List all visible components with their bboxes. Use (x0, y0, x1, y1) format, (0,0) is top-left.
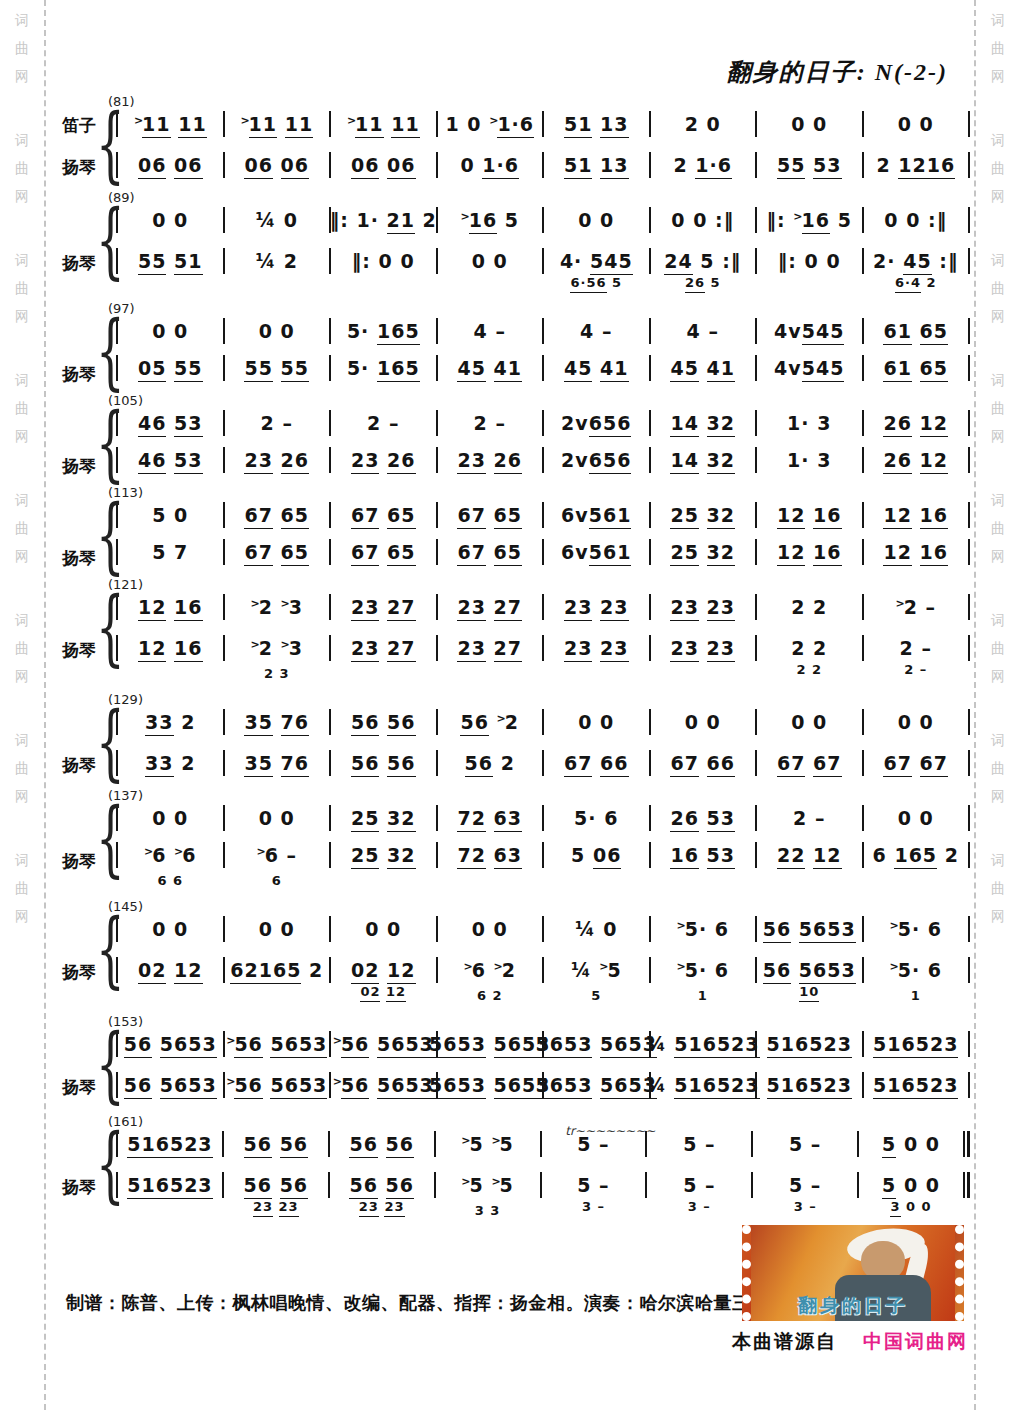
measure-notes: 72 63 (457, 841, 522, 869)
beamed-note-group: 12 (777, 541, 805, 566)
measure: ¼ 2 (225, 247, 330, 275)
measure: ¾ 516523 (651, 1030, 756, 1058)
album-art: 翻身的日子 (742, 1225, 964, 1321)
watermark-char: 词 (991, 13, 1005, 27)
measure: 0 0 (225, 317, 330, 345)
watermark-char: 网 (991, 549, 1005, 563)
system-rows: 0 00 00 00 0¼ 0>5· 656 5653>5· 602 12621… (116, 915, 970, 1003)
accent-mark: > (676, 919, 685, 932)
measure: 23 27 (331, 634, 436, 662)
part-label-upper: 笛子 (50, 114, 96, 137)
watermark-group: 词曲网 (15, 606, 29, 690)
measure-notes: 2 – (261, 409, 293, 437)
measure: 26 53 (651, 804, 756, 832)
measure-notes: >56 5653 (226, 1071, 327, 1103)
measure-notes: 56 56 (351, 749, 416, 777)
notation-row-upper: 0 0¼ 0‖: 1· 21 2>16 50 00 0 :‖‖: >16 50 … (116, 206, 970, 238)
beamed-note-group: 13 (600, 154, 628, 179)
beamed-note-group: 56 (349, 1133, 377, 1158)
system-brace: { (96, 407, 105, 481)
measure: 46 53 (118, 446, 223, 474)
barline (968, 318, 970, 344)
measure-notes: 26 12 (883, 409, 948, 437)
watermark-column-right: 词曲网词曲网词曲网词曲网词曲网词曲网词曲网词曲网 (974, 0, 1020, 1410)
beamed-note-group: 53 (174, 449, 202, 474)
measure: 23 23 (651, 593, 756, 621)
beamed-note-group: 23 (384, 1199, 404, 1217)
measure-notes: 24 5 :‖ (664, 247, 741, 275)
beamed-note-group: 56 (234, 1033, 262, 1058)
barline (968, 152, 970, 178)
barline (963, 1172, 965, 1198)
measure: 23 26 (331, 446, 436, 474)
beamed-note-group: 12 (883, 541, 911, 566)
beamed-note-group: 26 (494, 449, 522, 474)
beamed-note-group: 14 (670, 449, 698, 474)
measure-notes: 61 65 (883, 354, 948, 382)
measure: 06 06 (225, 151, 330, 179)
album-title-text: 翻身的日子 (751, 1293, 955, 1319)
measure: 0 0 (118, 804, 223, 832)
notation-row-upper: 56 5653>56 5653>56 56535653 56535653 565… (116, 1030, 970, 1062)
measure-notes: >16 5 (460, 206, 519, 238)
barline (968, 502, 970, 528)
measure-notes: 516523 (873, 1071, 958, 1099)
measure-number: (81) (108, 94, 970, 109)
beamed-note-group: 21 (387, 209, 415, 234)
beamed-note-group: 516523 (873, 1033, 958, 1058)
barline (968, 447, 970, 473)
measure-notes: 0 0 (152, 317, 188, 345)
beamed-note-group: 45 (457, 357, 485, 382)
measure-notes: 0 0 (259, 804, 295, 832)
measure-notes: 516523 (127, 1130, 212, 1158)
beamed-note-group: 26 (387, 449, 415, 474)
measure-sub-notes: 1 (911, 989, 921, 1003)
beamed-note-group: 06 (138, 154, 166, 179)
measure: 2 1·6 (651, 151, 756, 179)
beamed-note-group: 67 (564, 752, 592, 777)
measure: 12 16 (864, 538, 969, 566)
measure: 2 – (438, 409, 543, 437)
measure-notes: >6 >6 (144, 841, 197, 873)
measure-notes: 33 2 (145, 708, 195, 736)
beamed-note-group: 16 (802, 209, 830, 234)
barline (968, 842, 970, 868)
watermark-char: 词 (991, 373, 1005, 387)
measure-number: (105) (108, 393, 970, 408)
measure-notes: 0 0 (472, 247, 508, 275)
measure: 26 12 (864, 446, 969, 474)
measure-number: (137) (108, 788, 970, 803)
measure: 516523 (118, 1171, 222, 1199)
measure-notes: 2 2 (791, 593, 827, 621)
watermark-group: 词曲网 (15, 846, 29, 930)
system-brace: { (96, 706, 105, 780)
measure-notes: 16 53 (670, 841, 735, 869)
beamed-note-group: 5653 (160, 1033, 217, 1058)
measure-notes: 0 0 (578, 708, 614, 736)
beamed-note-group: 06 (351, 154, 379, 179)
measure: 5 06 (544, 841, 649, 869)
measure: 45 41 (438, 354, 543, 382)
measure-notes: ¾ 516523 (646, 1030, 760, 1058)
beamed-note-group: 5653 (429, 1033, 486, 1058)
barline (968, 1031, 970, 1057)
measure-sub-notes: 6·4 2 (895, 276, 937, 290)
beamed-note-group: 65 (387, 504, 415, 529)
beamed-note-group: 516523 (674, 1074, 759, 1099)
accent-mark: > (250, 597, 259, 610)
beamed-note-group: 16 (174, 596, 202, 621)
beamed-note-group: 55 (174, 357, 202, 382)
measure-notes: 56 5653 (763, 956, 856, 984)
measure-sub-notes: 3 0 0 (890, 1200, 931, 1214)
watermark-char: 曲 (15, 641, 29, 655)
beamed-note-group: 65 (494, 504, 522, 529)
beamed-note-group: 41 (494, 357, 522, 382)
watermark-char: 曲 (15, 521, 29, 535)
measure-notes: 06 06 (244, 151, 309, 179)
measure-notes: >56 5653 (226, 1030, 327, 1062)
beamed-note-group: 06 (593, 844, 621, 869)
measure-notes: 2 – (367, 409, 399, 437)
measure-notes: 516523 (767, 1071, 852, 1099)
beamed-note-group: 56 (386, 1174, 414, 1199)
measure-notes: ‖: 1· 21 2 (330, 206, 437, 234)
measure-notes: 12 16 (883, 538, 948, 566)
watermark-group: 词曲网 (991, 846, 1005, 930)
measure-notes: 4 – (474, 317, 506, 345)
accent-mark: > (461, 1134, 470, 1147)
beamed-note-group: 72 (457, 844, 485, 869)
measure: 0 0 (331, 915, 436, 943)
credits-text: 制谱：陈普、上传：枫林唱晚情、改编、配器、指挥：扬金相。演奏：哈尔滨哈量三社区艺… (66, 1291, 843, 1315)
measure-number: (129) (108, 692, 970, 707)
beamed-note-group: 56 (280, 1174, 308, 1199)
measure-notes: 0 0 (898, 804, 934, 832)
measure: 61 65 (864, 317, 969, 345)
beamed-note-group: 65 (920, 357, 948, 382)
measure-notes: 23 27 (351, 634, 416, 662)
measure-notes: 0 0 (791, 110, 827, 138)
measure-notes: 23 23 (564, 634, 629, 662)
measure-notes: 45 41 (457, 354, 522, 382)
notation-row-lower: 12 16>2 >32 323 2723 2723 2323 232 22 22… (116, 634, 970, 681)
system-rows: 0 0¼ 0‖: 1· 21 2>16 50 00 0 :‖‖: >16 50 … (116, 206, 970, 290)
measure: 0 0 (544, 708, 649, 736)
beamed-note-group: 56 (351, 752, 379, 777)
measure: 25 32 (331, 841, 436, 869)
measure-notes: 12 16 (777, 501, 842, 529)
notation-row-lower: 5 767 6567 6567 656v56125 3212 1612 16 (116, 538, 970, 566)
measure-notes: 35 76 (244, 708, 309, 736)
measure-number: (89) (108, 190, 970, 205)
measure-notes: 5653 5653 (536, 1071, 657, 1099)
part-label-lower: 扬琴 (50, 639, 96, 662)
measure: >6 >66 6 (118, 841, 223, 888)
beamed-note-group: 11 (391, 113, 419, 138)
measure: 5· 6 (544, 804, 649, 832)
measure-number: (113) (108, 485, 970, 500)
part-label-lower: 扬琴 (50, 961, 96, 984)
measure: 0 0 (225, 915, 330, 943)
measure: >56 5653 (225, 1030, 330, 1062)
beamed-note-group: 16 (920, 504, 948, 529)
beamed-note-group: 16 (813, 541, 841, 566)
beamed-note-group: 45 (564, 357, 592, 382)
beamed-note-group: 53 (707, 844, 735, 869)
beamed-note-group: 12 (387, 959, 415, 984)
measure-notes: 2v656 (561, 409, 631, 437)
measure-notes: >2 – (895, 593, 936, 625)
beamed-note-group: 61 (883, 357, 911, 382)
beamed-note-group: 56 (124, 1074, 152, 1099)
measure: 56 56 (331, 749, 436, 777)
watermark-group: 词曲网 (15, 486, 29, 570)
beamed-note-group: 65 (281, 541, 309, 566)
measure: >5· 6 (651, 915, 756, 947)
beamed-note-group: 12 (138, 596, 166, 621)
beamed-note-group: 23 (600, 596, 628, 621)
accent-mark: > (676, 960, 685, 973)
measure: 5653 5653 (438, 1071, 543, 1099)
barline (968, 916, 970, 942)
measure-notes: ‖: >16 5 (767, 206, 852, 238)
measure-notes: 55 51 (138, 247, 203, 275)
measure-notes: 23 26 (244, 446, 309, 474)
beamed-note-group: 24 (664, 250, 692, 275)
measure: >5 >5 (436, 1130, 540, 1162)
beamed-note-group: 23 (670, 596, 698, 621)
score-system-81: (81){笛子扬琴>11 11>11 11>11 111 0 >1·651 13… (50, 94, 970, 179)
beamed-note-group: 1216 (898, 154, 955, 179)
beamed-note-group: 5653 (536, 1074, 593, 1099)
part-label-lower: 扬琴 (50, 850, 96, 873)
system-brace: { (96, 315, 105, 389)
measure-notes: 23 23 (670, 593, 735, 621)
beamed-note-group: 516523 (674, 1033, 759, 1058)
beamed-note-group: 56 (341, 1033, 369, 1058)
beamed-note-group: 67 (777, 752, 805, 777)
measure: 4 – (651, 317, 756, 345)
measure-notes: 0 0 (152, 206, 188, 234)
measure: 23 26 (225, 446, 330, 474)
beamed-note-group: 545 (802, 320, 845, 345)
score-system-129: (129){扬琴33 235 7656 5656 >20 00 00 00 03… (50, 692, 970, 777)
beamed-note-group: 656 (589, 412, 632, 437)
notation-row-upper: 0 00 025 3272 635· 626 532 –0 0 (116, 804, 970, 832)
beamed-note-group: 56 (763, 959, 791, 984)
beamed-note-group: 32 (387, 844, 415, 869)
measure-notes: 67 65 (244, 501, 309, 529)
measure: 2v656 (544, 446, 649, 474)
beamed-note-group: 53 (813, 154, 841, 179)
beamed-note-group: 46 (138, 412, 166, 437)
measure: 0 0 (118, 206, 223, 234)
measure-sub-notes: 02 12 (360, 985, 406, 999)
measure: ‖: 0 0 (757, 247, 862, 275)
measure-sub-notes: 23 23 (359, 1200, 405, 1214)
beamed-note-group: 67 (244, 541, 272, 566)
system-rows: 46 532 –2 –2 –2v65614 321· 326 1246 5323… (116, 409, 970, 474)
measure: 1· 3 (757, 446, 862, 474)
measure-notes: 0 1·6 (460, 151, 519, 179)
measure: 55 51 (118, 247, 223, 275)
measure-notes: 56 56 (349, 1130, 414, 1158)
measure: 51 13 (544, 151, 649, 179)
beamed-note-group: 67 (351, 541, 379, 566)
source-site-link[interactable]: 中国词曲网 (863, 1330, 968, 1352)
beamed-note-group: 33 (145, 711, 173, 736)
measure: 5 0 03 0 0 (859, 1171, 963, 1214)
watermark-group: 词曲网 (991, 126, 1005, 210)
measure-notes: 0 0 (472, 915, 508, 943)
accent-mark: > (889, 960, 898, 973)
beamed-note-group: 516523 (127, 1174, 212, 1199)
measure: 05 55 (118, 354, 223, 382)
watermark-char: 词 (15, 733, 29, 747)
beamed-note-group: 76 (281, 752, 309, 777)
measure: 06 06 (118, 151, 223, 179)
beamed-note-group: 56 (465, 752, 493, 777)
measure-number: (97) (108, 301, 970, 316)
measure: 23 26 (438, 446, 543, 474)
measure: ¾ 516523 (651, 1071, 756, 1099)
measure-notes: 5 – (577, 1171, 609, 1199)
barline (963, 1131, 965, 1157)
measure-sub-notes: 2 3 (264, 667, 290, 681)
measure-notes: 51 13 (564, 110, 629, 138)
watermark-char: 网 (15, 909, 29, 923)
measure: 2v656 (544, 409, 649, 437)
measure-notes: 06 06 (351, 151, 416, 179)
watermark-char: 词 (991, 253, 1005, 267)
measure: 6 165 2 (864, 841, 969, 869)
watermark-char: 曲 (991, 281, 1005, 295)
measure-sub-notes: 5 (591, 989, 601, 1003)
measure: 0 0 (757, 110, 862, 138)
score-system-105: (105){扬琴46 532 –2 –2 –2v65614 321· 326 1… (50, 393, 970, 474)
beamed-note-group: 13 (600, 113, 628, 138)
measure-notes: 0 0 (685, 708, 721, 736)
measure: 516523 (757, 1030, 862, 1058)
measure: >16 5 (438, 206, 543, 238)
beamed-note-group: 67 (883, 752, 911, 777)
measure: 0 0 (118, 317, 223, 345)
measure-sub-notes: 2 2 (796, 663, 822, 677)
measure: 5 –3 – (753, 1171, 857, 1214)
measure-notes: 4v545 (774, 317, 844, 345)
system-brace: { (96, 108, 105, 182)
watermark-char: 曲 (991, 401, 1005, 415)
measure: 56 5623 23 (330, 1171, 434, 1214)
measure-notes: 0 0 (365, 915, 401, 943)
beamed-note-group: 26 (670, 807, 698, 832)
beamed-note-group: 41 (600, 357, 628, 382)
measure: 67 65 (438, 538, 543, 566)
beamed-note-group: 23 (351, 596, 379, 621)
measure-notes: >2 >3 (250, 634, 303, 666)
beamed-note-group: 32 (707, 449, 735, 474)
barline (968, 111, 970, 137)
beamed-note-group: 56 (460, 711, 488, 736)
measure-notes: 0 0 (152, 915, 188, 943)
beamed-note-group: 32 (707, 412, 735, 437)
measure: 56 56 (331, 708, 436, 736)
measure-notes: >2 >3 (250, 593, 303, 625)
beamed-note-group: 23 (707, 596, 735, 621)
measure: 6v561 (544, 538, 649, 566)
beamed-note-group: 23 (670, 637, 698, 662)
measure: >5· 61 (651, 956, 756, 1003)
measure: ‖: >16 5 (757, 206, 862, 238)
measure: >56 5653 (225, 1071, 330, 1103)
beamed-note-group: 25 (351, 844, 379, 869)
measure: 67 66 (544, 749, 649, 777)
beamed-note-group: 5653 (270, 1033, 327, 1058)
measure: 51 13 (544, 110, 649, 138)
measure: 4 – (544, 317, 649, 345)
beamed-note-group: 02 (360, 984, 380, 1002)
watermark-group: 词曲网 (991, 726, 1005, 810)
beamed-note-group: 56 (234, 1074, 262, 1099)
beamed-note-group: 5653 (429, 1074, 486, 1099)
measure-notes: 2 1·6 (673, 151, 732, 179)
beamed-note-group: 3 (890, 1199, 900, 1217)
measure-notes: 2v656 (561, 446, 631, 474)
measure-notes: 5 7 (152, 538, 188, 566)
measure-notes: 62165 2 (230, 956, 323, 984)
beamed-note-group: 23 (457, 637, 485, 662)
beamed-note-group: 23 (359, 1199, 379, 1217)
measure-notes: 12 16 (138, 593, 203, 621)
accent-mark: > (491, 1134, 500, 1147)
measure: 5653 5653 (544, 1071, 649, 1099)
measure-notes: 0 0 (898, 110, 934, 138)
measure: 2 2 (757, 593, 862, 621)
watermark-group: 词曲网 (991, 6, 1005, 90)
measure: 2 22 2 (757, 634, 862, 677)
beamed-note-group: 62165 (230, 959, 301, 984)
measure-notes: >5· 6 (889, 915, 942, 947)
beamed-note-group: 16 (920, 541, 948, 566)
beamed-note-group: 27 (494, 596, 522, 621)
watermark-group: 词曲网 (15, 246, 29, 330)
beamed-note-group: 61 (883, 320, 911, 345)
measure: 67 65 (331, 501, 436, 529)
beamed-note-group: 5653 (536, 1033, 593, 1058)
system-rows: 56 5653>56 5653>56 56535653 56535653 565… (116, 1030, 970, 1103)
measure: 5 –3 – (542, 1171, 646, 1214)
beamed-note-group: 66 (707, 752, 735, 777)
beamed-note-group: 26 (883, 449, 911, 474)
notation-row-lower: 05 5555 555· 16545 4145 4145 414v54561 6… (116, 354, 970, 382)
measure: 23 23 (544, 634, 649, 662)
beamed-note-group: 12 (386, 984, 406, 1002)
measure: 12 16 (118, 634, 223, 662)
measure: 0 0 (438, 915, 543, 943)
part-label-lower: 扬琴 (50, 252, 96, 275)
measure: 0 0 :‖ (651, 206, 756, 234)
barline (968, 248, 970, 274)
beamed-note-group: 51 (564, 113, 592, 138)
beamed-note-group: 63 (494, 807, 522, 832)
measure: 23 27 (331, 593, 436, 621)
measure-notes: 06 06 (138, 151, 203, 179)
beamed-note-group: 5653 (799, 918, 856, 943)
measure-number: (145) (108, 899, 970, 914)
